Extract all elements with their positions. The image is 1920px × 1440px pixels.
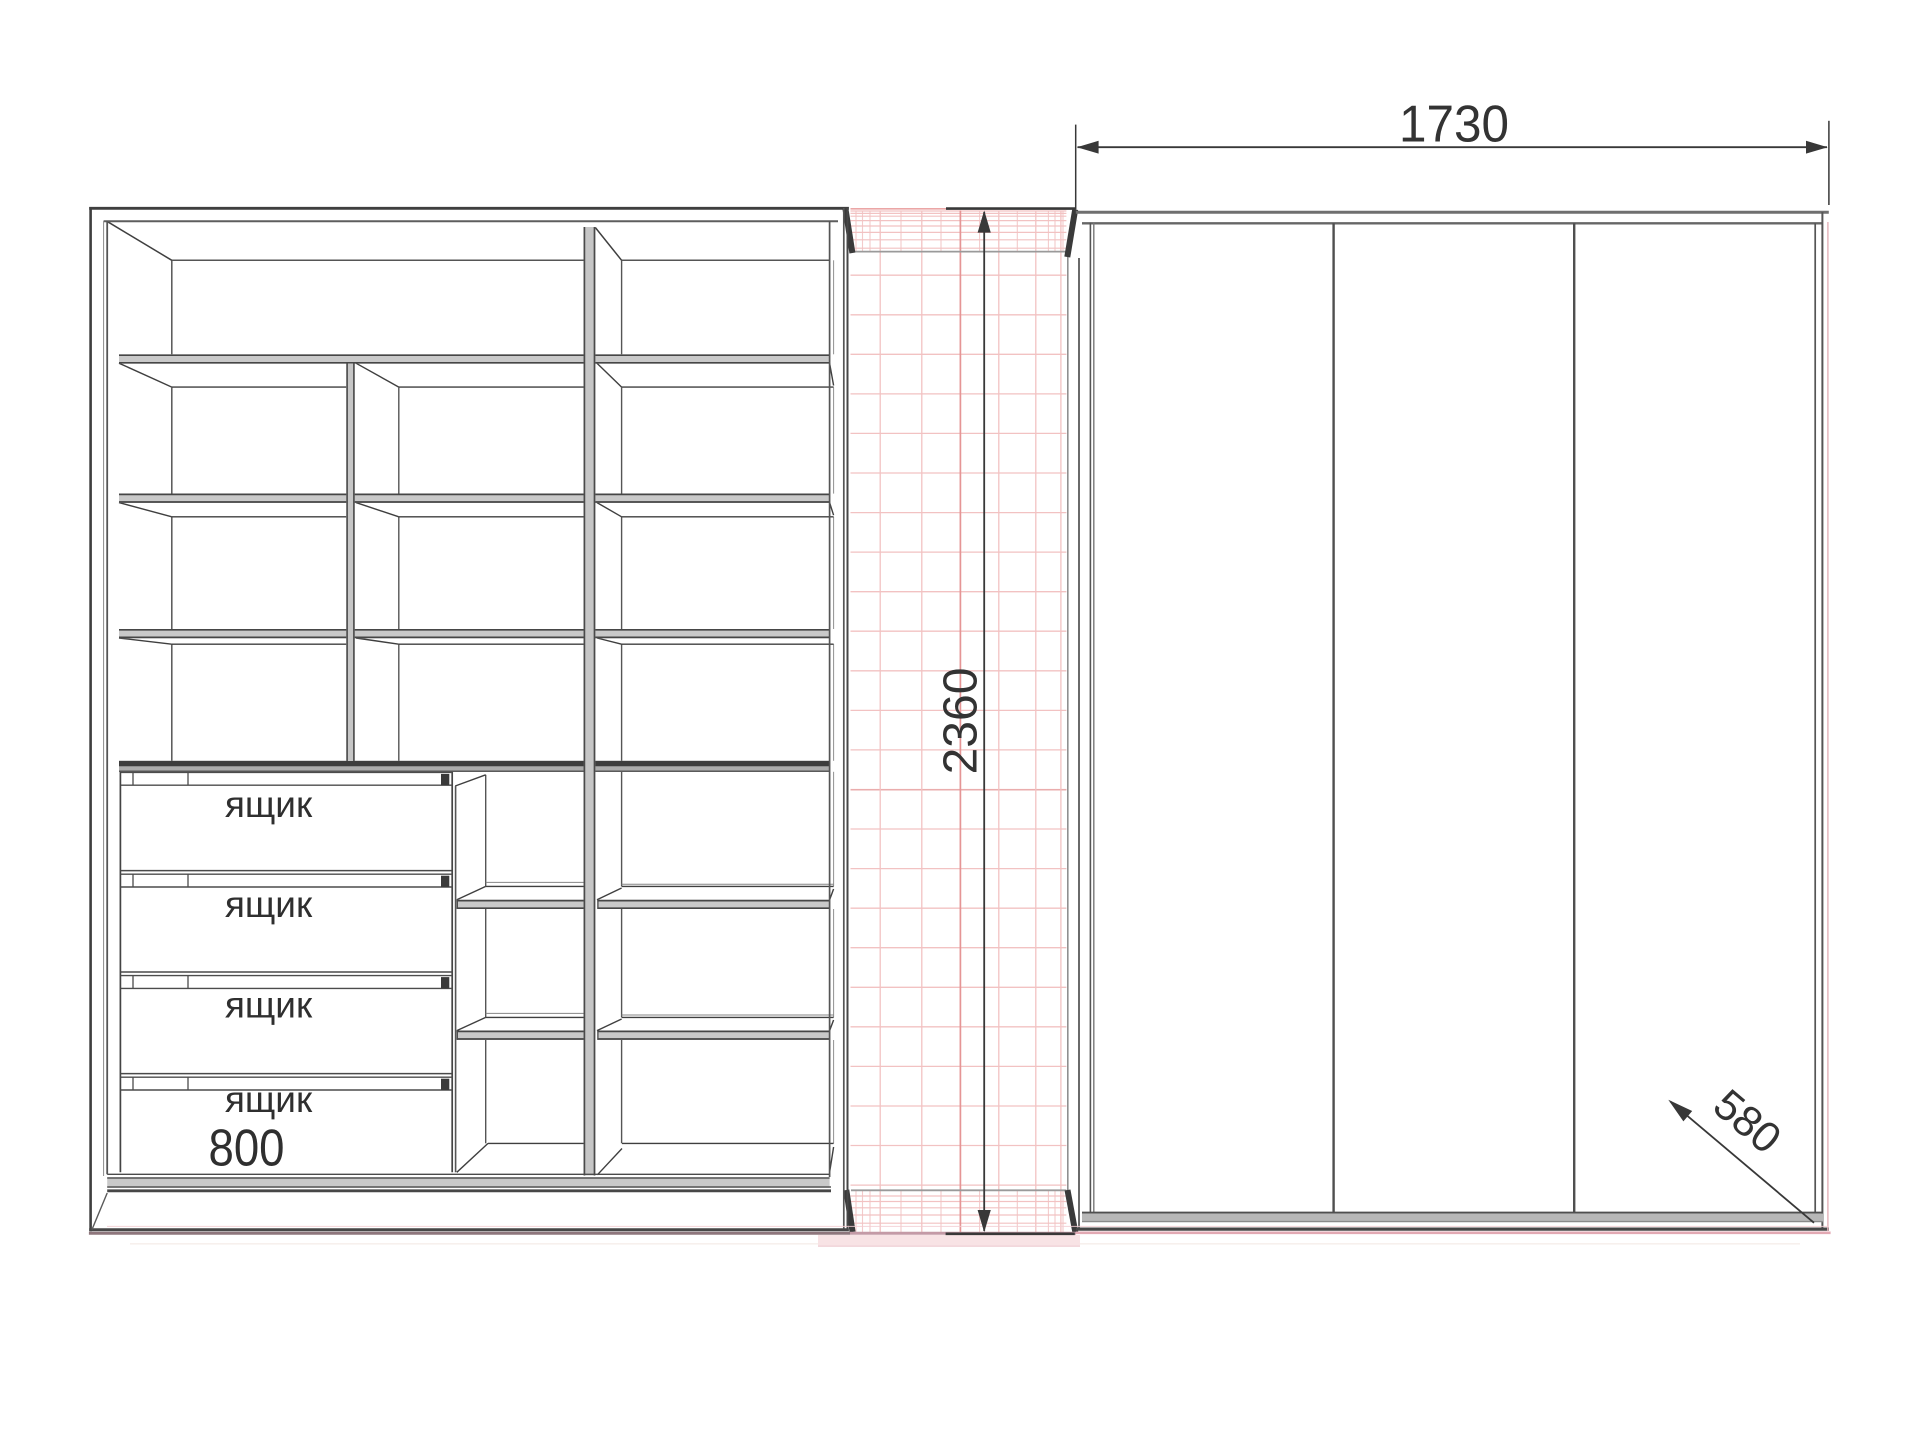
svg-text:ящик: ящик (225, 985, 313, 1026)
svg-text:ящик: ящик (225, 1079, 313, 1120)
svg-text:1730: 1730 (1399, 95, 1509, 153)
svg-text:ящик: ящик (225, 784, 313, 825)
svg-text:800: 800 (209, 1120, 285, 1178)
svg-text:2360: 2360 (935, 668, 988, 775)
svg-text:ящик: ящик (225, 884, 313, 925)
